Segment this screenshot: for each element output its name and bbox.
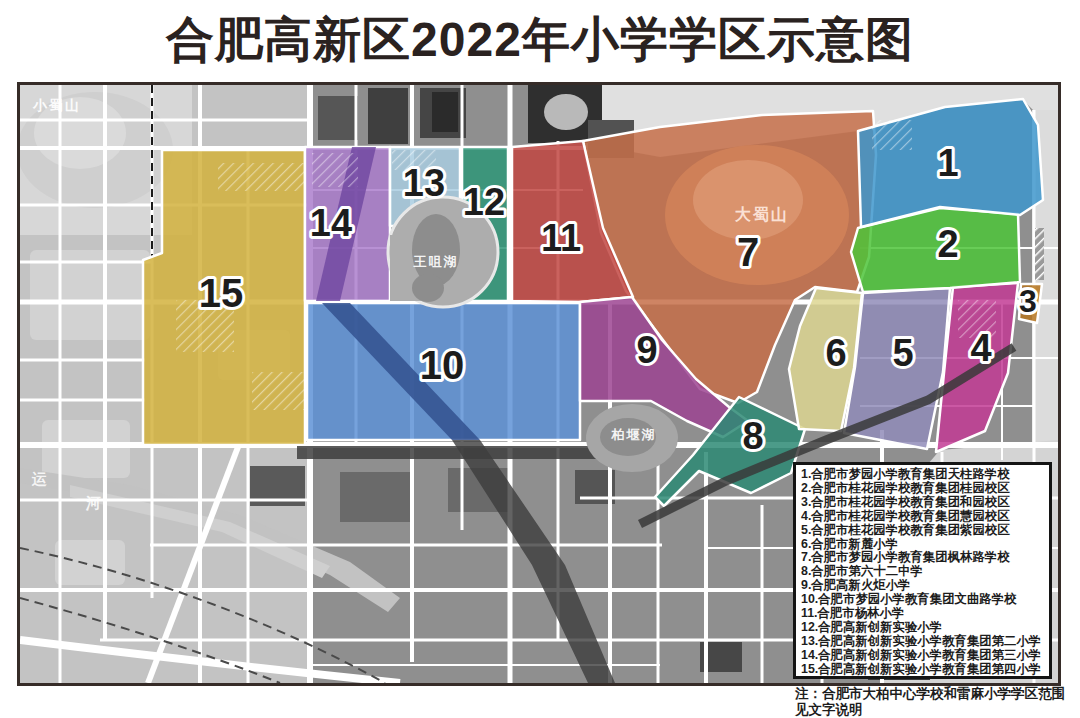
page: 合肥高新区2022年小学学区示意图 715141312111098654321小… — [0, 0, 1080, 718]
place-label-wangzuihu: 王咀湖 — [413, 254, 459, 269]
district-number-label-13: 13 — [403, 162, 445, 204]
legend-item-2: 2.合肥市桂花园学校教育集团桂园校区 — [801, 482, 1044, 496]
district-number-label-6: 6 — [825, 332, 846, 374]
district-number-label-4: 4 — [970, 327, 991, 369]
place-label-baiyanhu: 柏堰湖 — [611, 427, 657, 442]
legend-box: 1.合肥市梦园小学教育集团天柱路学校2.合肥市桂花园学校教育集团桂园校区3.合肥… — [793, 462, 1052, 679]
place-label-yunhe-yun: 运 — [32, 470, 49, 487]
legend-item-11: 11.合肥市杨林小学 — [801, 607, 1044, 621]
district-number-label-5: 5 — [892, 332, 913, 374]
place-label-dashushan: 大蜀山 — [735, 206, 789, 223]
note-line-2: 见文字说明 — [795, 702, 1077, 718]
legend-item-4: 4.合肥市桂花园学校教育集团慧园校区 — [801, 510, 1044, 524]
legend-item-3: 3.合肥市桂花园学校教育集团和园校区 — [801, 496, 1044, 510]
legend-item-1: 1.合肥市梦园小学教育集团天柱路学校 — [801, 468, 1044, 482]
district-number-label-12: 12 — [463, 181, 505, 223]
legend-item-13: 13.合肥高新创新实验小学教育集团第二小学 — [801, 635, 1044, 649]
legend-list: 1.合肥市梦园小学教育集团天柱路学校2.合肥市桂花园学校教育集团桂园校区3.合肥… — [801, 468, 1044, 677]
legend-item-8: 8.合肥市第六十二中学 — [801, 565, 1044, 579]
place-label-xiaoshushan: 小蜀山 — [32, 97, 81, 113]
legend-item-14: 14.合肥高新创新实验小学教育集团第三小学 — [801, 649, 1044, 663]
place-label-yunhe-he: 河 — [85, 494, 103, 511]
legend-item-10: 10.合肥市梦园小学教育集团文曲路学校 — [801, 593, 1044, 607]
legend-item-7: 7.合肥市梦园小学教育集团枫林路学校 — [801, 551, 1044, 565]
district-number-label-9: 9 — [636, 329, 657, 371]
district-number-label-15: 15 — [199, 271, 244, 315]
district-number-label-3: 3 — [1019, 283, 1037, 319]
legend-item-12: 12.合肥高新创新实验小学 — [801, 621, 1044, 635]
map-note: 注：合肥市大柏中心学校和雷麻小学学区范围 见文字说明 — [795, 686, 1077, 717]
district-number-label-2: 2 — [937, 223, 958, 265]
note-line-1: 注：合肥市大柏中心学校和雷麻小学学区范围 — [795, 686, 1077, 702]
legend-item-5: 5.合肥市桂花园学校教育集团紫园校区 — [801, 524, 1044, 538]
district-number-label-7: 7 — [737, 230, 759, 274]
district-number-label-1: 1 — [937, 142, 958, 184]
district-number-label-10: 10 — [420, 343, 465, 387]
district-number-label-11: 11 — [541, 217, 581, 259]
page-title: 合肥高新区2022年小学学区示意图 — [0, 8, 1080, 72]
district-number-label-8: 8 — [742, 415, 763, 457]
legend-item-15: 15.合肥高新创新实验小学教育集团第四小学 — [801, 663, 1044, 677]
district-number-label-14: 14 — [310, 202, 352, 244]
